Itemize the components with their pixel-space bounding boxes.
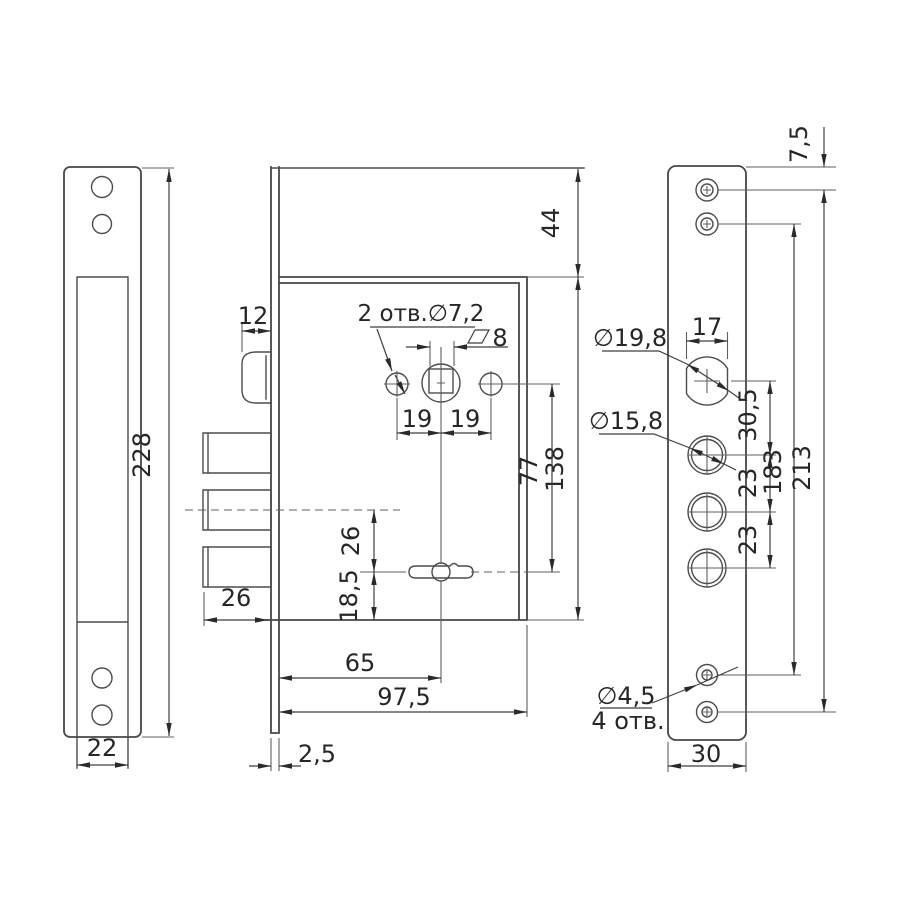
dim-label-19-right: 19 xyxy=(450,405,481,433)
dim-label-bolt-spacing-2: 23 xyxy=(734,525,762,556)
dim-label-top-screw-offset: 7,5 xyxy=(785,125,813,163)
dim-label-key-to-bottom: 18,5 xyxy=(335,569,363,622)
dim-label-bolt-length: 26 xyxy=(221,584,252,612)
dim-label-strike-width: 22 xyxy=(87,734,118,762)
dim-label-bolt-to-key: 26 xyxy=(337,526,365,557)
dim-label-screw-span-inner: 183 xyxy=(759,449,787,495)
strike-plate-pocket-cutout xyxy=(77,277,128,768)
faceplate-view: 17 ∅19,8 ∅15,8 30,5 23 23 183 213 7,5 ∅4… xyxy=(589,125,836,772)
screw-hole xyxy=(92,177,113,198)
hole-center-crosses xyxy=(688,186,726,716)
dim-label-cylinder-width: 17 xyxy=(692,313,723,341)
leader-holes-a xyxy=(377,329,392,371)
keyhole-slot xyxy=(409,564,473,579)
dim-label-strike-height: 228 xyxy=(128,432,156,478)
lock-case-outline xyxy=(266,277,527,620)
dim-label-19-left: 19 xyxy=(402,405,433,433)
dim-label-bolt-spacing-1: 23 xyxy=(734,468,762,499)
dim-label-cylinder-dia: ∅19,8 xyxy=(593,324,667,352)
lock-faceplate-edge xyxy=(271,167,279,733)
screw-hole xyxy=(93,215,112,234)
screw-hole xyxy=(92,705,112,725)
dim-label-body-height: 138 xyxy=(541,446,569,492)
square-symbol xyxy=(468,330,489,343)
dim-label-screw-count: 4 отв. xyxy=(591,707,664,735)
dim-label-top-offset: 44 xyxy=(537,208,565,239)
strike-plate-view: 228 22 xyxy=(64,167,174,768)
lock-technical-drawing: 228 22 12 2 отв.∅7,2 xyxy=(0,0,900,900)
dim-label-screw-dia: ∅4,5 xyxy=(596,682,655,710)
dim-label-latch-width: 12 xyxy=(238,302,269,330)
dim-label-cyl-to-bolt: 30,5 xyxy=(734,388,762,441)
dim-label-screw-span-outer: 213 xyxy=(788,445,816,491)
dim-label-bolt-hole-dia: ∅15,8 xyxy=(589,407,663,435)
leader-cylinder-dia xyxy=(602,351,739,398)
leader-cylinder-dia-arrows xyxy=(687,364,729,391)
latch-bolt xyxy=(242,352,271,403)
dim-label-handle-to-key: 77 xyxy=(515,456,543,487)
lock-body-view: 12 2 отв.∅7,2 8 19 19 44 138 77 26 18,5 … xyxy=(185,167,584,771)
dim-label-square: 8 xyxy=(492,324,507,352)
label-two-holes: 2 отв.∅7,2 xyxy=(358,301,485,327)
dim-label-faceplate-width: 30 xyxy=(691,740,722,768)
dim-label-body-depth: 97,5 xyxy=(377,683,430,711)
leader-screw-dia-arrow xyxy=(652,685,697,703)
dim-label-faceplate-thickness: 2,5 xyxy=(298,740,336,768)
screw-hole xyxy=(92,668,112,688)
drawing-page: 228 22 12 2 отв.∅7,2 xyxy=(0,0,900,900)
dim-label-backset: 65 xyxy=(345,649,376,677)
